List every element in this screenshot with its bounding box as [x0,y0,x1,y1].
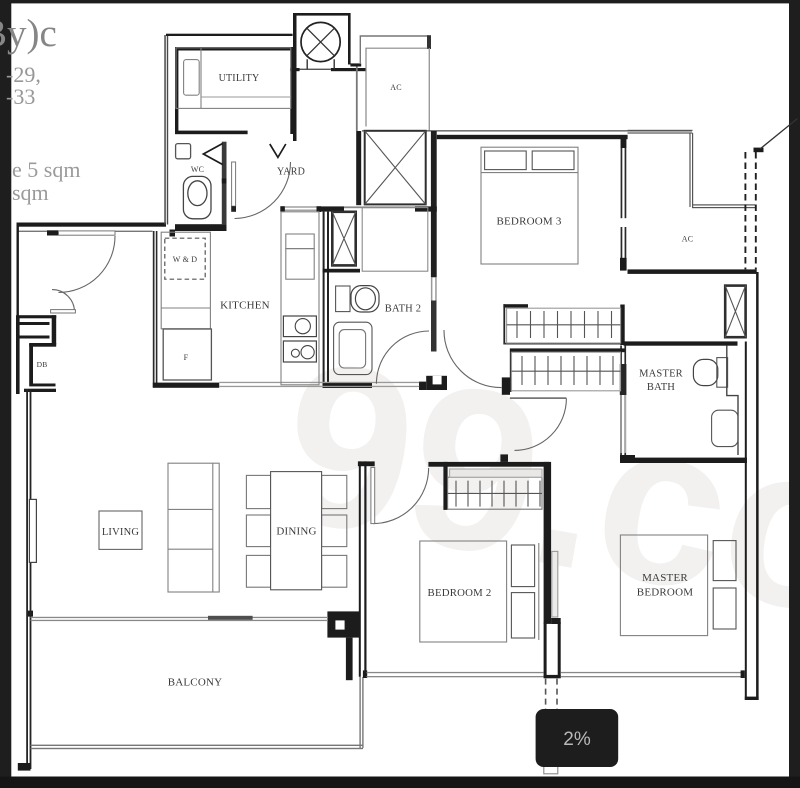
svg-text:BEDROOM 3: BEDROOM 3 [496,216,561,228]
svg-text:By)c: By)c [0,12,57,55]
svg-text:2%: 2% [563,729,591,750]
svg-text:MASTER: MASTER [642,572,688,584]
svg-text:AC: AC [390,83,402,92]
svg-text:e 5 sqm: e 5 sqm [12,157,80,182]
svg-text:F: F [184,353,189,362]
svg-text:BEDROOM: BEDROOM [637,587,693,599]
svg-text:BATH 2: BATH 2 [385,304,422,315]
svg-text:sqm: sqm [12,180,49,205]
svg-text:-33: -33 [6,84,35,109]
svg-text:BATH: BATH [647,382,675,393]
svg-text:YARD: YARD [277,167,305,178]
svg-text:BEDROOM 2: BEDROOM 2 [428,587,492,599]
svg-text:AC: AC [682,235,694,244]
svg-text:MASTER: MASTER [639,369,683,380]
svg-text:W & D: W & D [173,255,197,264]
svg-text:LIVING: LIVING [102,527,140,538]
svg-text:DB: DB [37,360,48,369]
svg-text:DINING: DINING [276,526,316,538]
svg-text:UTILITY: UTILITY [219,73,260,84]
svg-text:BALCONY: BALCONY [168,677,223,689]
svg-text:KITCHEN: KITCHEN [220,300,270,312]
svg-text:WC: WC [191,165,204,174]
